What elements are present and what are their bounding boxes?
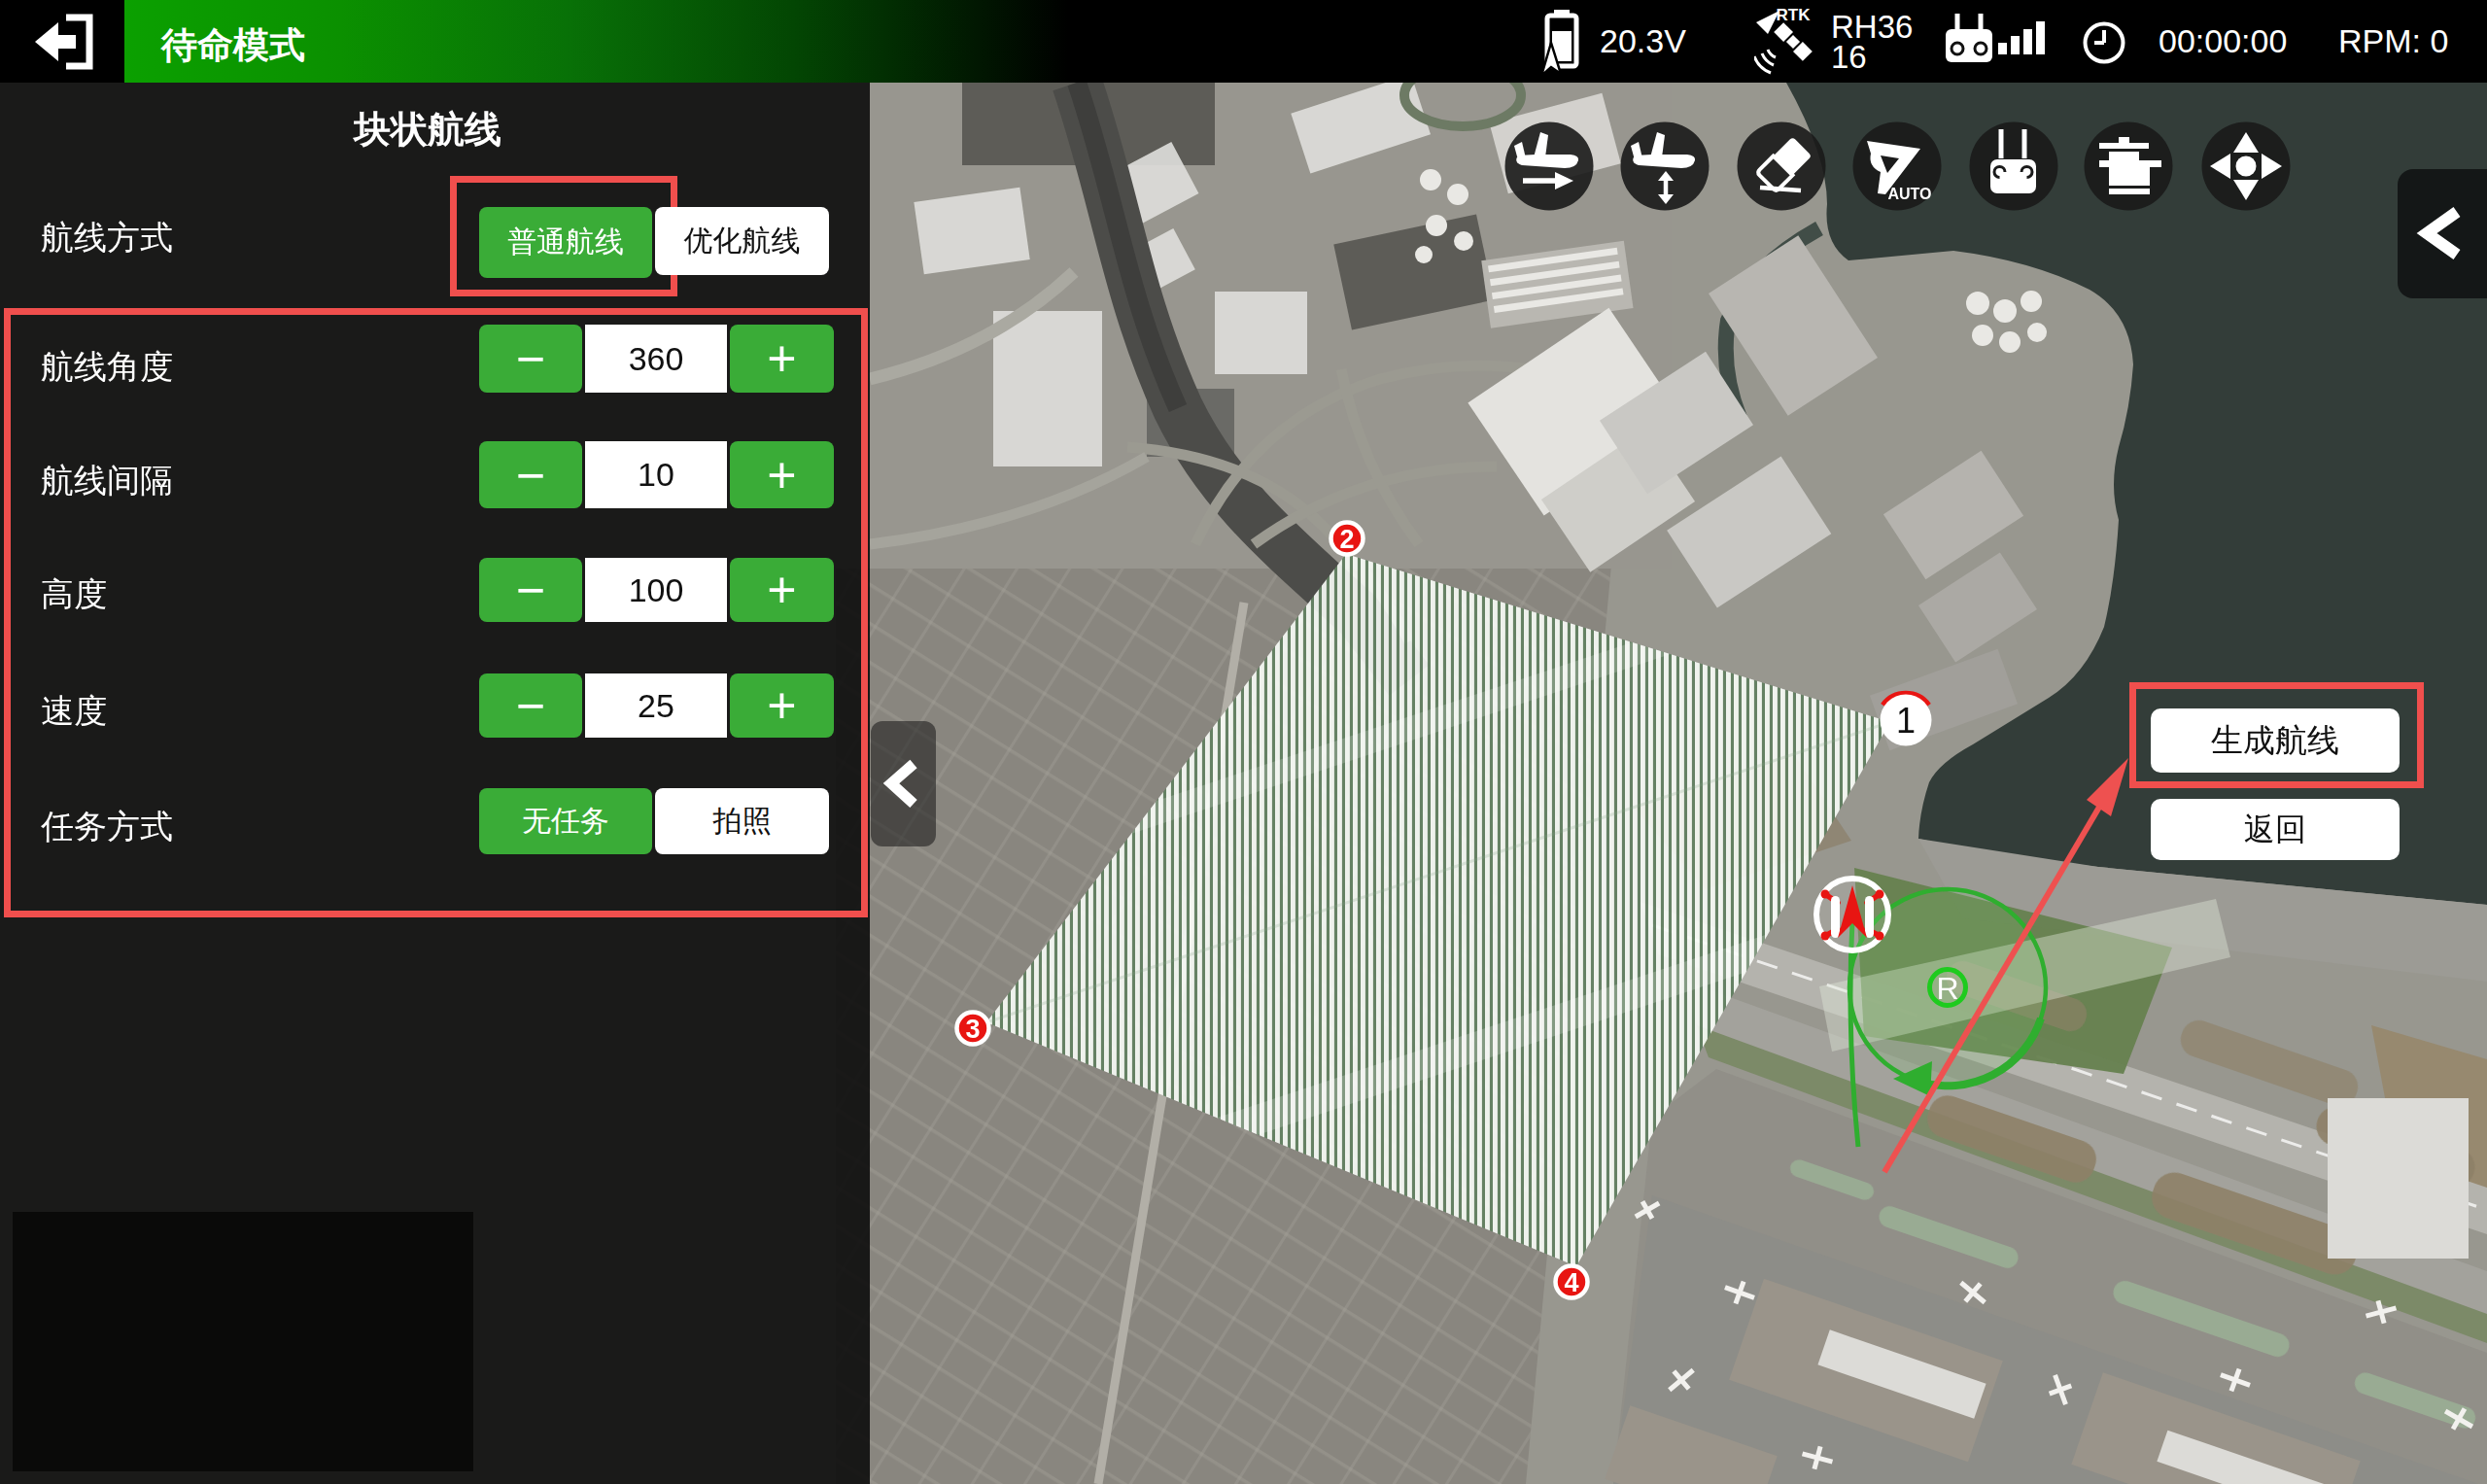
svg-text:RTK: RTK [1777, 6, 1812, 24]
svg-text:2: 2 [1339, 525, 1354, 554]
svg-text:1: 1 [1896, 701, 1916, 741]
svg-text:3: 3 [965, 1015, 980, 1044]
svg-text:AUTO: AUTO [1887, 186, 1931, 202]
svg-text:R: R [1936, 971, 1958, 1006]
svg-text:4: 4 [1564, 1268, 1578, 1297]
